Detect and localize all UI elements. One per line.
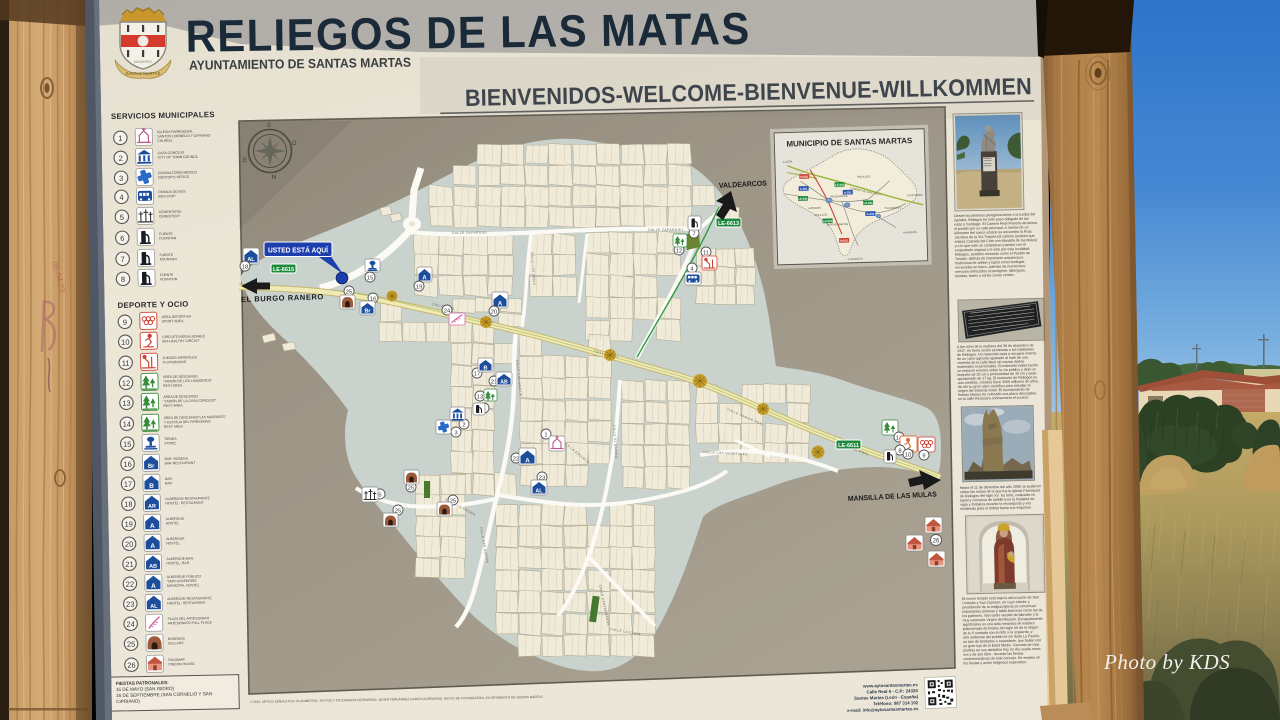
svg-text:CALLE ZAPARDIEL: CALLE ZAPARDIEL [648, 228, 684, 232]
svg-text:18: 18 [242, 265, 248, 271]
svg-text:CELLARS: CELLARS [168, 641, 184, 645]
svg-text:20: 20 [491, 310, 497, 316]
svg-text:13: 13 [122, 399, 131, 408]
svg-text:FOUNTAIN: FOUNTAIN [159, 236, 177, 240]
svg-text:SPORT AREA: SPORT AREA [162, 319, 184, 323]
svg-text:26: 26 [127, 661, 136, 670]
svg-text:CHURCH: CHURCH [157, 139, 172, 143]
svg-text:6: 6 [120, 234, 124, 243]
svg-text:AB: AB [149, 564, 157, 570]
svg-text:10: 10 [121, 338, 130, 347]
svg-text:A: A [525, 458, 530, 465]
svg-text:LE-6611: LE-6611 [838, 443, 859, 449]
svg-text:HOSTEL: HOSTEL [166, 541, 180, 545]
svg-text:Br: Br [364, 309, 371, 315]
svg-text:25: 25 [408, 486, 414, 492]
svg-text:7: 7 [121, 255, 125, 264]
svg-text:LUENGOS: LUENGOS [808, 206, 821, 210]
svg-text:A-231: A-231 [844, 190, 852, 194]
svg-text:A: A [150, 523, 155, 530]
svg-text:BUS STOP: BUS STOP [158, 194, 176, 198]
svg-text:2: 2 [119, 154, 123, 163]
svg-text:B: B [149, 483, 154, 490]
svg-text:PLAYGROUND: PLAYGROUND [163, 360, 187, 364]
svg-text:4: 4 [119, 193, 123, 202]
svg-text:A-231: A-231 [867, 212, 875, 216]
svg-text:CALLE ZAPARDIEL: CALLE ZAPARDIEL [452, 230, 488, 235]
svg-text:DEPORTE Y OCIO: DEPORTE Y OCIO [117, 300, 188, 310]
svg-text:MUNICIPIO: MUNICIPIO [134, 60, 152, 64]
svg-text:SANTAS MARTAS: SANTAS MARTAS [827, 222, 849, 227]
svg-text:18: 18 [124, 500, 133, 509]
svg-text:STORE: STORE [164, 441, 176, 445]
svg-text:22: 22 [513, 457, 519, 463]
svg-text:SANTAS MARTAS: SANTAS MARTAS [126, 71, 161, 76]
svg-text:REST AREA: REST AREA [164, 424, 184, 428]
svg-text:BAR: BAR [165, 481, 173, 485]
svg-text:3: 3 [119, 174, 123, 183]
svg-text:FOUNTAIN: FOUNTAIN [160, 277, 178, 281]
svg-text:A: A [150, 543, 155, 550]
svg-text:A: A [422, 276, 427, 282]
svg-text:AR: AR [148, 504, 156, 510]
svg-text:CITY OF TOWN COUNCIL: CITY OF TOWN COUNCIL [158, 155, 199, 160]
svg-text:VILLAMARCO: VILLAMARCO [884, 205, 901, 209]
svg-text:16: 16 [123, 460, 132, 469]
svg-text:22: 22 [126, 580, 135, 589]
svg-text:CEMENTERY: CEMENTERY [159, 214, 181, 218]
svg-text:10: 10 [905, 453, 911, 459]
svg-text:B: B [483, 366, 487, 372]
svg-text:A BURGOS: A BURGOS [903, 230, 917, 234]
svg-text:HOSTEL- RESTAURANT: HOSTEL- RESTAURANT [167, 601, 205, 606]
svg-text:3: 3 [454, 431, 457, 437]
svg-text:A VALENCIA: A VALENCIA [848, 257, 863, 261]
svg-text:REST AREA: REST AREA [163, 383, 183, 387]
svg-text:23: 23 [126, 600, 135, 609]
svg-text:9: 9 [922, 454, 925, 460]
svg-text:1: 1 [118, 134, 122, 143]
svg-text:14: 14 [123, 420, 132, 429]
svg-text:5: 5 [120, 213, 124, 222]
svg-text:LE-6613: LE-6613 [718, 221, 739, 227]
svg-text:AYUNTAMIENTO DE SANTAS MARTAS: AYUNTAMIENTO DE SANTAS MARTAS [189, 55, 411, 73]
svg-text:AB: AB [500, 380, 508, 386]
svg-text:1: 1 [544, 433, 547, 439]
svg-text:25: 25 [346, 290, 352, 296]
svg-text:LE-941: LE-941 [835, 183, 845, 187]
svg-text:A: A [498, 301, 503, 308]
svg-text:DOCTOR'S OFFICE: DOCTOR'S OFFICE [158, 175, 190, 180]
svg-text:MUNICIPAL HOSTEL: MUNICIPAL HOSTEL [167, 583, 200, 588]
svg-text:19: 19 [125, 520, 134, 529]
svg-text:N-601: N-601 [840, 239, 848, 243]
svg-text:HOSTEL- RESTAURANT: HOSTEL- RESTAURANT [165, 501, 203, 506]
svg-text:11: 11 [122, 359, 130, 368]
svg-text:BAR-RESTAURANT: BAR-RESTAURANT [165, 461, 196, 466]
svg-text:12: 12 [122, 379, 131, 388]
svg-text:24: 24 [126, 620, 135, 629]
svg-text:FOUNTAIN: FOUNTAIN [160, 257, 178, 261]
svg-text:REST AREA: REST AREA [163, 403, 183, 407]
svg-text:A-231: A-231 [800, 187, 808, 191]
svg-text:8: 8 [898, 449, 901, 455]
svg-text:9: 9 [123, 318, 127, 327]
svg-text:5: 5 [378, 493, 381, 499]
svg-text:Photo by KDS: Photo by KDS [1103, 650, 1230, 674]
svg-text:Br: Br [148, 464, 155, 470]
svg-text:LE-6615: LE-6615 [273, 267, 294, 273]
svg-text:A CISTIERNA: A CISTIERNA [907, 193, 924, 197]
svg-text:HOSTEL: HOSTEL [166, 521, 180, 525]
svg-text:USTED ESTÁ AQUÍ: USTED ESTÁ AQUÍ [268, 246, 329, 255]
svg-text:AL: AL [150, 604, 158, 610]
svg-text:AL: AL [536, 489, 544, 495]
svg-text:RELIEGOS DE LAS MATAS: RELIEGOS DE LAS MATAS [185, 3, 751, 62]
svg-text:26: 26 [933, 539, 940, 545]
svg-text:A: A [151, 583, 156, 590]
svg-text:FIESTAS PATRONALES:: FIESTAS PATRONALES: [116, 680, 169, 686]
svg-text:ARTESONATO FULL PLACE: ARTESONATO FULL PLACE [168, 621, 213, 626]
svg-text:19: 19 [416, 285, 422, 291]
svg-text:MALILLOS: MALILLOS [814, 212, 827, 216]
svg-text:21: 21 [125, 560, 134, 569]
svg-text:20: 20 [125, 540, 134, 549]
svg-text:LE-941: LE-941 [863, 201, 873, 205]
svg-text:17: 17 [124, 480, 133, 489]
svg-text:CIPRIANO): CIPRIANO) [116, 699, 140, 704]
svg-text:15: 15 [123, 440, 132, 449]
svg-text:7: 7 [692, 232, 695, 238]
svg-text:2: 2 [462, 423, 465, 429]
svg-text:LE-941: LE-941 [798, 197, 808, 201]
svg-text:8: 8 [121, 275, 125, 284]
svg-text:PIGEON HOUSE: PIGEON HOUSE [168, 662, 195, 667]
svg-text:N-601: N-601 [800, 175, 808, 179]
svg-text:MALILLOS: MALILLOS [857, 174, 870, 178]
svg-text:17: 17 [474, 372, 480, 378]
svg-text:25: 25 [127, 640, 136, 649]
svg-text:BIO-HEALTHY CIRCUIT: BIO-HEALTHY CIRCUIT [162, 339, 199, 344]
svg-text:12: 12 [676, 249, 682, 255]
svg-text:HOSTEL- BAR: HOSTEL- BAR [166, 561, 189, 565]
svg-text:15: 15 [367, 276, 373, 282]
svg-text:13: 13 [477, 395, 483, 401]
svg-text:VALDEARCOS: VALDEARCOS [830, 194, 848, 198]
